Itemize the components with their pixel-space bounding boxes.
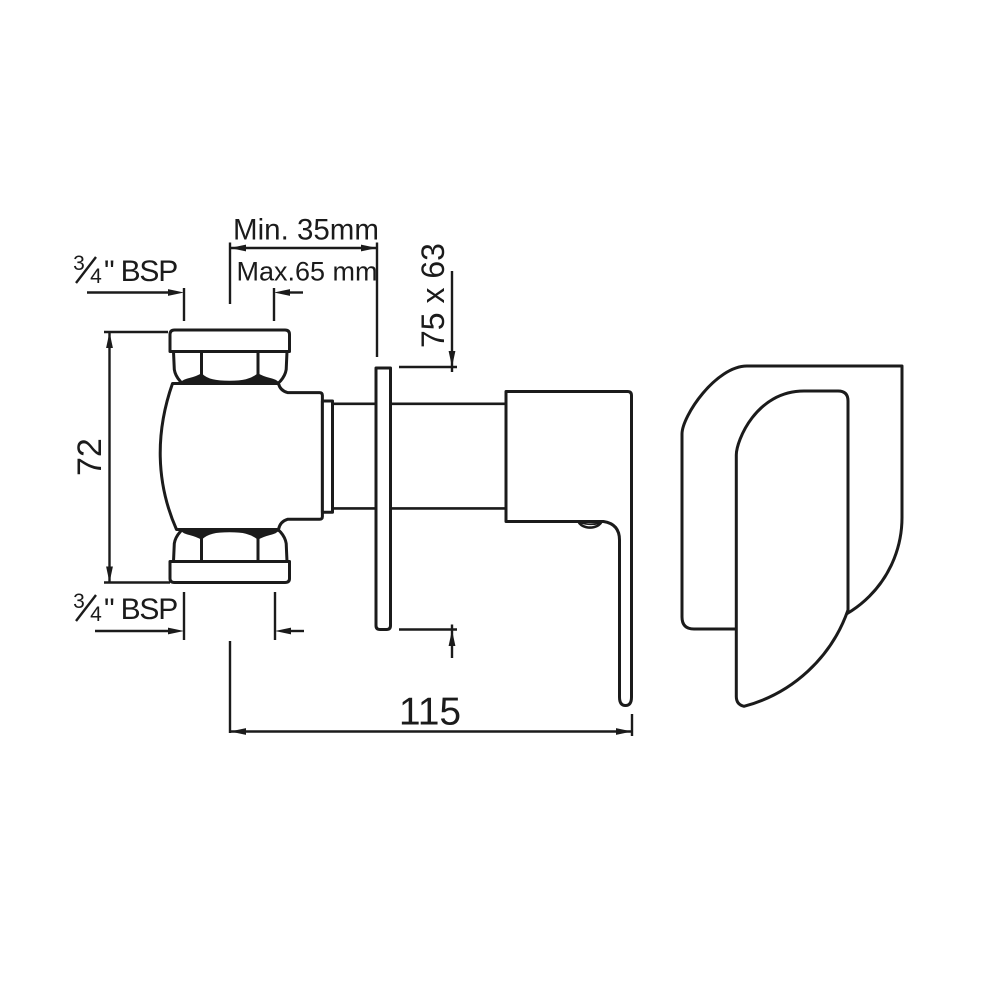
svg-text:3: 3 [73, 252, 85, 275]
svg-text:75 x 63: 75 x 63 [415, 243, 451, 348]
svg-text:3: 3 [73, 590, 85, 613]
svg-text:72: 72 [71, 438, 109, 476]
svg-text:Max.65 mm: Max.65 mm [236, 257, 377, 287]
svg-text:" BSP: " BSP [104, 593, 177, 626]
svg-text:115: 115 [399, 691, 461, 734]
svg-text:4: 4 [90, 265, 102, 288]
svg-text:4: 4 [90, 603, 102, 626]
svg-text:" BSP: " BSP [104, 255, 177, 288]
svg-text:Min. 35mm: Min. 35mm [233, 214, 379, 247]
